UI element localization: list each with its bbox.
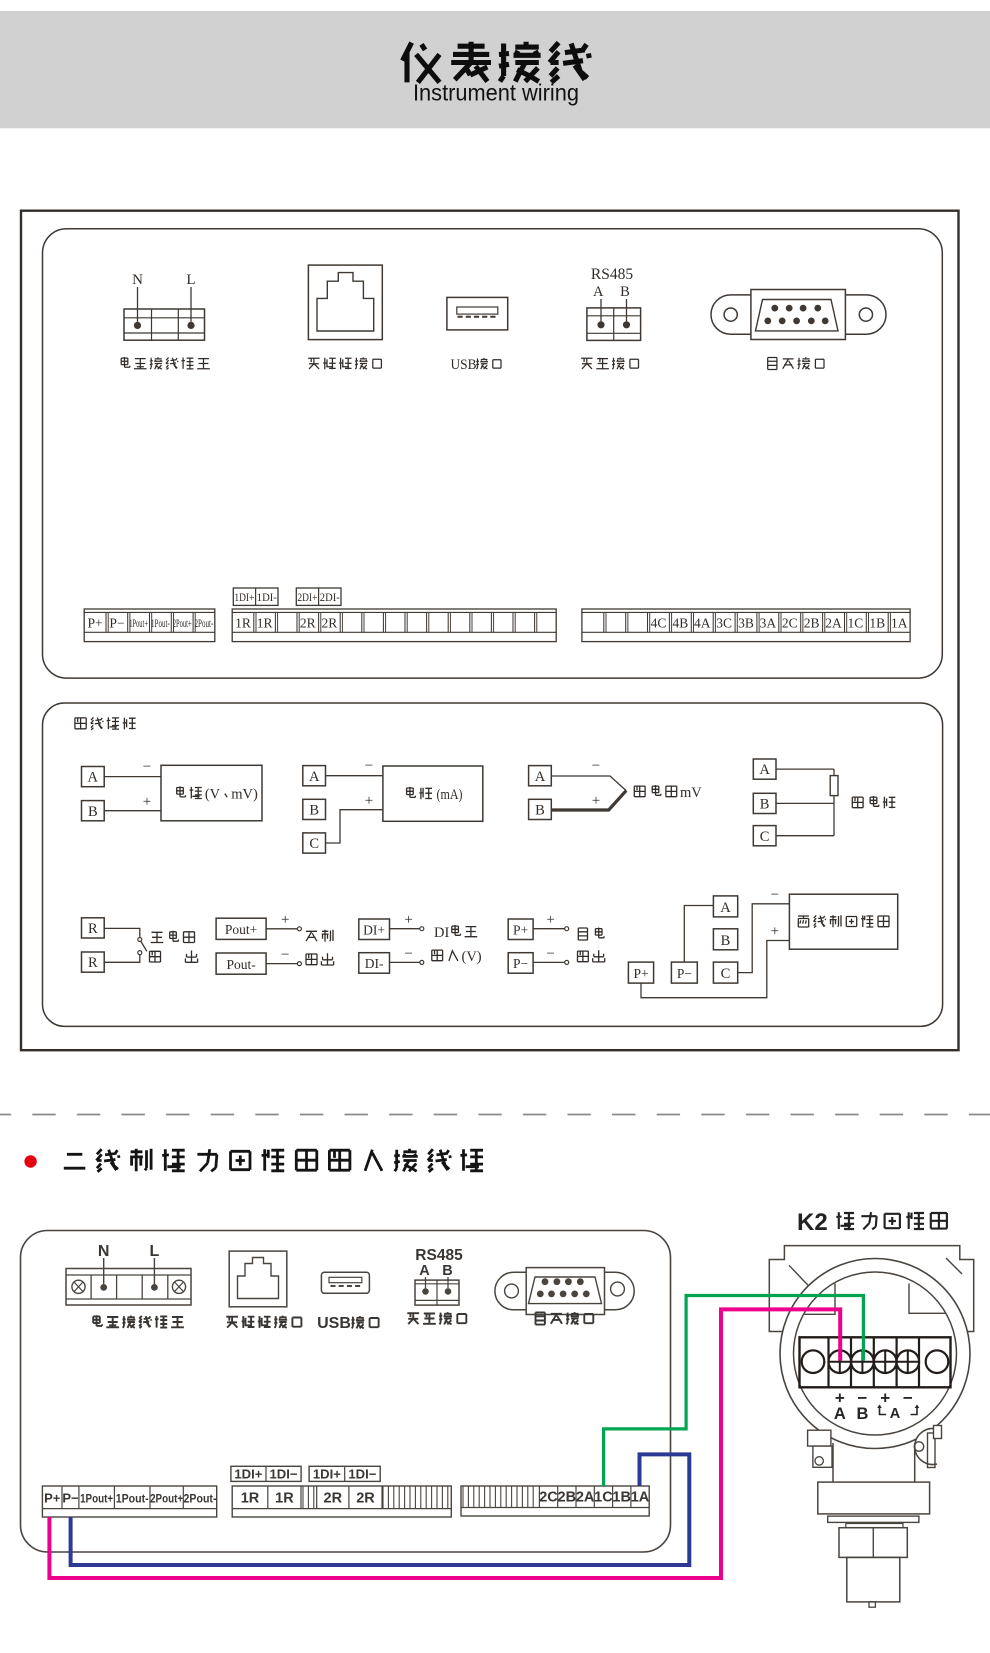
svg-text:P−: P− xyxy=(109,615,124,630)
svg-text:1R: 1R xyxy=(235,615,251,630)
svg-text:P−: P− xyxy=(677,966,692,981)
svg-text:K2: K2 xyxy=(797,1209,828,1236)
svg-text:P−: P− xyxy=(62,1491,79,1506)
svg-text:1R: 1R xyxy=(241,1491,260,1507)
svg-text:4A: 4A xyxy=(694,615,711,630)
svg-text:−: − xyxy=(365,758,373,774)
svg-text:−: − xyxy=(281,947,289,963)
svg-text:+: + xyxy=(592,793,600,809)
svg-text:+: + xyxy=(281,912,289,928)
svg-text:B: B xyxy=(760,797,770,813)
svg-text:DI+: DI+ xyxy=(363,923,385,938)
svg-text:USB: USB xyxy=(451,357,477,373)
svg-text:L: L xyxy=(150,1243,160,1260)
svg-text:N: N xyxy=(98,1243,110,1260)
svg-text:A: A xyxy=(535,769,546,785)
svg-text:+: + xyxy=(880,1389,890,1408)
svg-text:3A: 3A xyxy=(760,615,777,630)
svg-text:1R: 1R xyxy=(275,1491,294,1507)
svg-text:A: A xyxy=(759,762,770,778)
svg-text:(V: (V xyxy=(205,787,221,803)
svg-text:DI: DI xyxy=(434,925,449,941)
svg-text:+: + xyxy=(771,923,779,939)
svg-text:2Pout-: 2Pout- xyxy=(195,618,214,630)
svg-text:A: A xyxy=(593,284,604,300)
svg-text:3C: 3C xyxy=(716,615,732,630)
svg-text:4C: 4C xyxy=(651,615,667,630)
svg-text:2C: 2C xyxy=(782,615,798,630)
svg-text:+: + xyxy=(404,912,412,928)
svg-text:1DI+: 1DI+ xyxy=(234,1466,262,1481)
svg-text:1C: 1C xyxy=(848,615,864,630)
svg-text:(V): (V) xyxy=(462,949,482,965)
svg-text:B: B xyxy=(442,1263,452,1279)
svg-text:B: B xyxy=(620,284,630,300)
svg-text:Pout-: Pout- xyxy=(226,957,256,972)
svg-text:A: A xyxy=(419,1263,430,1279)
svg-text:C: C xyxy=(309,836,319,852)
svg-text:B: B xyxy=(856,1405,868,1423)
svg-text:RS485: RS485 xyxy=(415,1247,463,1264)
svg-text:2Pout+: 2Pout+ xyxy=(173,618,192,630)
svg-text:A: A xyxy=(88,770,99,786)
svg-text:1A: 1A xyxy=(631,1490,650,1506)
svg-text:2B: 2B xyxy=(804,615,820,630)
svg-text:B: B xyxy=(535,803,545,819)
svg-text:A: A xyxy=(890,1406,901,1422)
svg-text:2A: 2A xyxy=(825,615,842,630)
svg-text:1B: 1B xyxy=(612,1490,631,1506)
svg-text:1DI−: 1DI− xyxy=(348,1466,376,1481)
svg-text:L: L xyxy=(186,272,195,288)
svg-text:+: + xyxy=(143,794,151,810)
svg-text:R: R xyxy=(88,921,98,937)
svg-text:+: + xyxy=(365,793,373,809)
svg-text:−: − xyxy=(404,946,412,962)
svg-text:3B: 3B xyxy=(738,615,754,630)
svg-text:Pout+: Pout+ xyxy=(225,922,257,937)
svg-text:mV: mV xyxy=(680,785,702,801)
svg-text:B: B xyxy=(309,803,319,819)
svg-text:1DI-: 1DI- xyxy=(257,592,277,604)
svg-text:2R: 2R xyxy=(322,615,338,630)
svg-text:2R: 2R xyxy=(300,615,316,630)
svg-text:1C: 1C xyxy=(594,1490,613,1506)
svg-text:C: C xyxy=(721,966,731,982)
svg-text:C: C xyxy=(760,829,770,845)
svg-text:R: R xyxy=(88,955,98,971)
svg-text:DI-: DI- xyxy=(365,956,384,971)
svg-text:2R: 2R xyxy=(356,1491,375,1507)
svg-text:1DI−: 1DI− xyxy=(270,1466,298,1481)
svg-text:USB: USB xyxy=(317,1315,351,1332)
svg-text:P+: P+ xyxy=(44,1491,61,1506)
svg-text:Instrument wiring: Instrument wiring xyxy=(413,80,579,106)
svg-text:1R: 1R xyxy=(257,615,273,630)
svg-text:P+: P+ xyxy=(88,615,103,630)
svg-text:−: − xyxy=(903,1389,913,1408)
svg-text:N: N xyxy=(132,272,143,288)
svg-text:B: B xyxy=(721,933,731,949)
svg-text:P−: P− xyxy=(513,956,528,971)
svg-text:P+: P+ xyxy=(513,923,528,938)
svg-text:2Pout-: 2Pout- xyxy=(184,1492,217,1506)
svg-text:(mA): (mA) xyxy=(437,787,463,803)
svg-text:4B: 4B xyxy=(673,615,689,630)
svg-text:1Pout+: 1Pout+ xyxy=(129,618,148,630)
svg-text:A: A xyxy=(720,900,731,916)
svg-text:1DI+: 1DI+ xyxy=(234,592,254,604)
svg-text:P+: P+ xyxy=(633,966,648,981)
svg-text:1DI+: 1DI+ xyxy=(313,1466,341,1481)
svg-text:−: − xyxy=(546,946,554,962)
svg-text:−: − xyxy=(592,758,600,774)
svg-text:2A: 2A xyxy=(576,1490,595,1506)
svg-text:1Pout-: 1Pout- xyxy=(116,1492,149,1506)
svg-text:2DI+: 2DI+ xyxy=(297,592,317,604)
svg-text:A: A xyxy=(309,769,320,785)
svg-text:2C: 2C xyxy=(539,1490,558,1506)
svg-text:2R: 2R xyxy=(324,1491,343,1507)
svg-text:2B: 2B xyxy=(558,1490,577,1506)
svg-text:RS485: RS485 xyxy=(591,266,633,283)
svg-text:A: A xyxy=(834,1405,846,1423)
svg-text:mV): mV) xyxy=(231,787,258,803)
svg-text:+: + xyxy=(546,912,554,928)
svg-text:1A: 1A xyxy=(891,615,908,630)
svg-text:−: − xyxy=(771,887,779,903)
svg-text:−: − xyxy=(143,759,151,775)
svg-text:2Pout+: 2Pout+ xyxy=(150,1492,183,1506)
svg-text:2DI-: 2DI- xyxy=(320,592,340,604)
svg-text:1B: 1B xyxy=(869,615,885,630)
svg-text:1Pout-: 1Pout- xyxy=(151,618,170,630)
svg-text:1Pout+: 1Pout+ xyxy=(80,1492,113,1506)
svg-text:B: B xyxy=(88,804,98,820)
